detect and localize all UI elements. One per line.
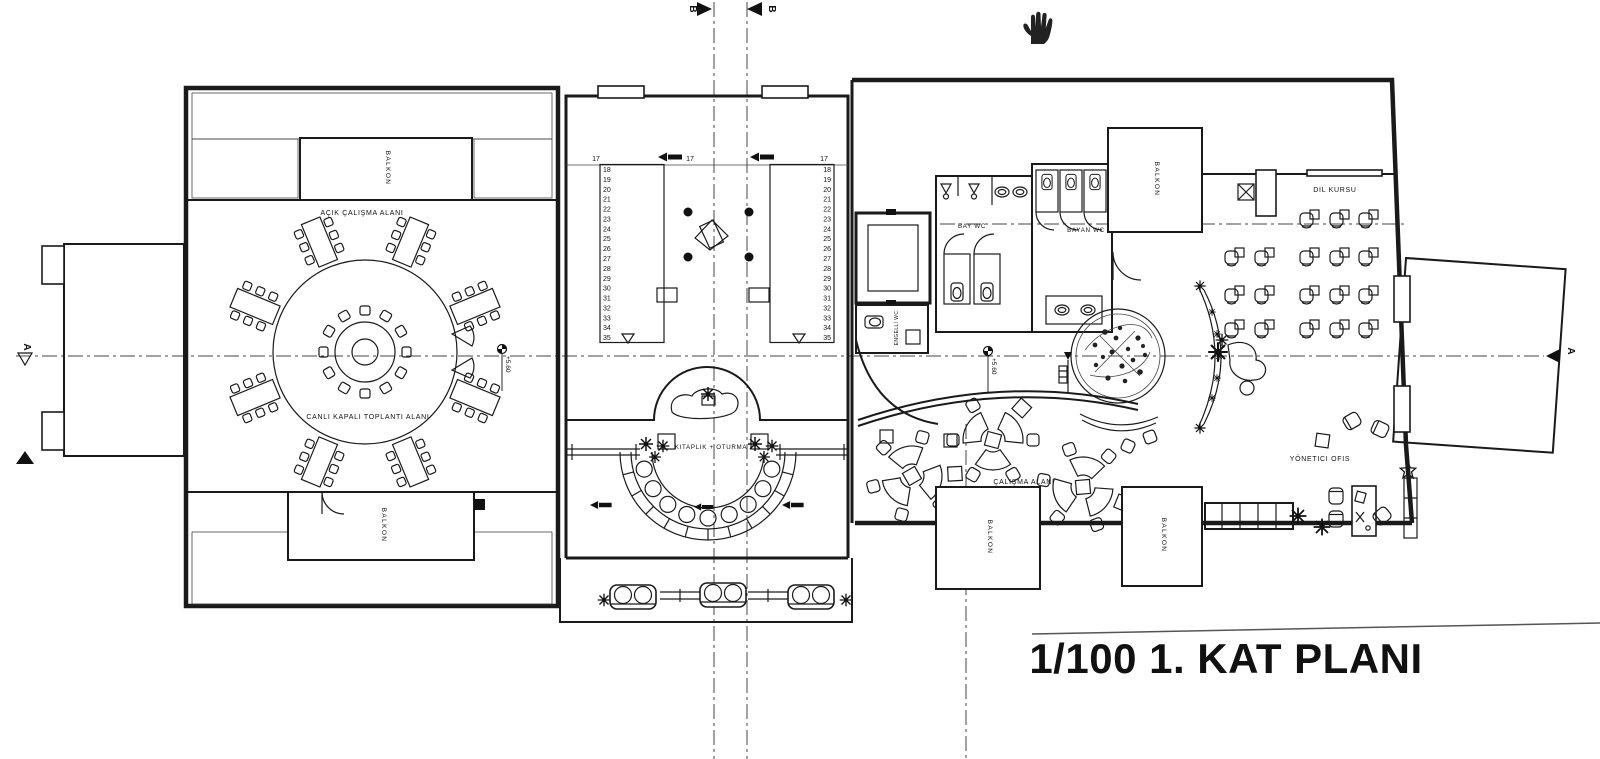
- stair-step-number: 35: [823, 335, 831, 342]
- room-label-bay-wc: BAY WC: [958, 223, 986, 230]
- stair-step-number: 24: [603, 226, 611, 233]
- balcony-bottom-right: BALKON: [1122, 487, 1202, 586]
- level-marker-right: +5.60: [984, 347, 998, 394]
- stair-step-number: 20: [823, 187, 831, 194]
- hand-pan-cursor-icon: [1023, 12, 1052, 44]
- stair-step-number: 26: [603, 246, 611, 253]
- stair-step-number: 21: [603, 197, 611, 204]
- room-label-kitaplik: KITAPLIK + OTURMA: [675, 444, 748, 451]
- stair-step-number: 32: [603, 306, 611, 313]
- stair-step-number: 28: [603, 266, 611, 273]
- womens-wc: BAYAN WC: [1032, 164, 1112, 332]
- balcony-top-right: BALKON: [1108, 128, 1202, 232]
- stair-step-number: 34: [603, 325, 611, 332]
- balcony-bottom-mid: BALKON: [936, 487, 1040, 589]
- room-label-acik-calisma: AÇIK ÇALIŞMA ALANI: [320, 210, 403, 217]
- room-label-dil-kursu: DIL KURSU: [1313, 187, 1356, 194]
- curved-bench: [1080, 414, 1158, 454]
- plant-icon: [1208, 342, 1228, 362]
- stair-step-number: 25: [823, 236, 831, 243]
- sofa: [788, 585, 834, 609]
- section-marker-a-right: A: [1546, 347, 1576, 363]
- up-arrow-icon: [750, 153, 774, 162]
- svg-text:B: B: [766, 5, 777, 12]
- floor-plan-canvas[interactable]: BALKON BALKON AÇIK ÇALIŞMA ALANI CANLI K…: [0, 0, 1600, 759]
- balkon-label: BALKON: [1153, 162, 1160, 197]
- stair-step-number: 33: [603, 315, 611, 322]
- stair-step-number: 23: [603, 216, 611, 223]
- room-label-calisma: ÇALIŞMA ALANI: [993, 479, 1054, 486]
- stair-step-number: 30: [603, 286, 611, 293]
- stair-step-number: 34: [823, 325, 831, 332]
- stair-step-number: 32: [823, 306, 831, 313]
- balkon-label: BALKON: [384, 151, 391, 186]
- stair-step-number: 30: [823, 286, 831, 293]
- elevator: [856, 209, 930, 306]
- stair-step-number: 23: [823, 216, 831, 223]
- stair-step-number: 18: [603, 167, 611, 174]
- balkon-label: BALKON: [380, 508, 387, 543]
- stair-landing-num: 17: [592, 156, 600, 163]
- stair-hall: 181920212223242526272829303132333435 181…: [566, 86, 848, 558]
- stair-step-number: 27: [823, 256, 831, 263]
- stair-step-number: 22: [823, 207, 831, 214]
- stair-step-number: 29: [603, 276, 611, 283]
- room-label-yonetici: YÖNETICI OFIS: [1290, 455, 1350, 463]
- stair-step-number: 20: [603, 187, 611, 194]
- west-balcony-roof: [42, 244, 184, 456]
- balkon-label: BALKON: [986, 520, 993, 555]
- meeting-circle-area: [226, 213, 504, 491]
- stair-step-number: 21: [823, 197, 831, 204]
- svg-text:A: A: [1565, 347, 1576, 354]
- amphitheater-seating: [620, 452, 796, 540]
- east-balcony-roof: [1393, 258, 1565, 453]
- room-label-bayan-wc: BAYAN WC: [1067, 227, 1105, 234]
- curved-colonnade: [1194, 280, 1222, 433]
- plan-title: 1/100 1. KAT PLANI: [1029, 635, 1422, 682]
- stair-step-number: 33: [823, 315, 831, 322]
- up-arrow-icon: [658, 153, 682, 162]
- left-block: BALKON BALKON AÇIK ÇALIŞMA ALANI CANLI K…: [186, 88, 558, 606]
- stair-flight-right: 181920212223242526272829303132333435: [770, 165, 834, 344]
- stair-step-number: 19: [823, 177, 831, 184]
- disabled-wc: ENGELLİ WC: [856, 305, 928, 353]
- sofa: [610, 585, 656, 609]
- svg-text:+5.60: +5.60: [990, 358, 997, 375]
- floor-plan-drawing: BALKON BALKON AÇIK ÇALIŞMA ALANI CANLI K…: [0, 0, 1600, 759]
- stair-step-number: 22: [603, 207, 611, 214]
- language-course-room: DIL KURSU: [1208, 170, 1378, 362]
- section-marker-b-left: B: [687, 2, 712, 16]
- svg-text:A: A: [21, 343, 32, 350]
- section-marker-a-left: A: [16, 343, 34, 464]
- balcony-bottom-left: BALKON: [288, 492, 474, 560]
- stair-step-number: 18: [823, 167, 831, 174]
- landing-sculpture: [695, 220, 728, 250]
- stair-step-number: 25: [603, 236, 611, 243]
- stair-step-number: 28: [823, 266, 831, 273]
- stair-landing-num: 17: [820, 156, 828, 163]
- svg-text:+5.60: +5.60: [504, 356, 511, 373]
- stair-step-number: 27: [603, 256, 611, 263]
- section-marker-b-right: B: [747, 2, 777, 16]
- sofa: [700, 583, 746, 607]
- stair-step-number: 29: [823, 276, 831, 283]
- plant-icon: [701, 387, 715, 401]
- title-block: 1/100 1. KAT PLANI: [1029, 623, 1600, 682]
- room-label-engelli-wc: ENGELLİ WC: [893, 311, 900, 346]
- stair-step-number: 24: [823, 226, 831, 233]
- stair-step-number: 19: [603, 177, 611, 184]
- mens-wc: BAY WC: [936, 176, 1032, 332]
- stair-step-number: 35: [603, 335, 611, 342]
- room-label-canli-toplanti: CANLI KAPALI TOPLANTI ALANI: [306, 414, 429, 421]
- balcony-top-left: BALKON: [300, 138, 472, 200]
- stair-step-number: 26: [823, 246, 831, 253]
- balkon-label: BALKON: [1160, 518, 1167, 553]
- reception-desk: [1216, 334, 1266, 395]
- stair-step-number: 31: [603, 296, 611, 303]
- library-seating-area: KITAPLIK + OTURMA: [560, 367, 852, 622]
- entrance-porch: [560, 558, 852, 622]
- right-block: ENGELLİ WC BAY WC BAYAN WC BALKON DI: [852, 80, 1566, 589]
- svg-text:B: B: [687, 5, 698, 12]
- stair-step-number: 31: [823, 296, 831, 303]
- stair-flight-left: 181920212223242526272829303132333435: [600, 165, 664, 344]
- level-marker-left: +5.60: [498, 345, 512, 392]
- stair-landing-num: 17: [686, 156, 694, 163]
